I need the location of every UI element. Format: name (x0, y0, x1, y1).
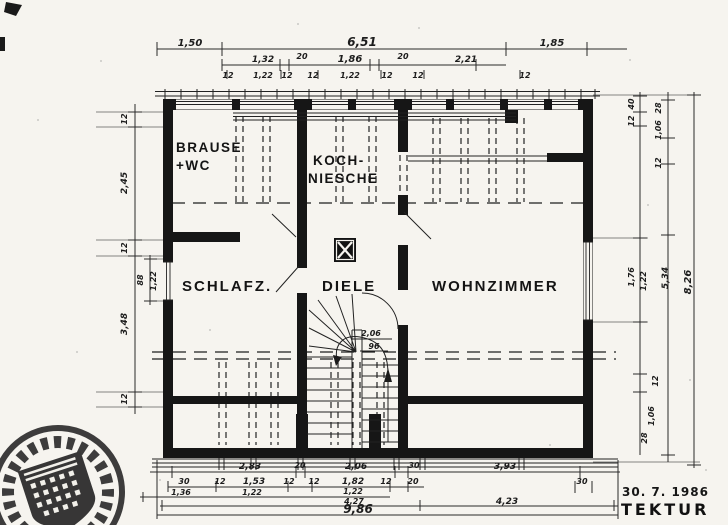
dimension-label: 12 (120, 242, 129, 254)
dimension-label: 12 (120, 113, 129, 125)
dimension-label: 12 (120, 393, 129, 405)
dimension-label: 12 (283, 477, 295, 486)
dimension-label: 4,23 (495, 497, 518, 507)
floor-plan-canvas: BRAUSE +WC KOCH- NIESCHE SCHLAFZ. DIELE … (0, 0, 728, 525)
dimension-label: 1,22 (639, 271, 648, 291)
dimension-label: 12 (281, 71, 293, 80)
tektur-label: TEKTUR (621, 500, 709, 519)
paper-background (0, 0, 728, 525)
dimension-label: 30 (408, 461, 420, 470)
dimension-label: 12 (222, 71, 234, 80)
dimension-label: 1,22 (253, 71, 273, 80)
dimension-label: 12 (627, 115, 636, 127)
room-label-koch: KOCH- (313, 153, 365, 168)
dimension-label: 40 (627, 98, 636, 111)
dimension-label: 2,45 (120, 172, 130, 194)
stair-dim-label: 96 (368, 342, 380, 351)
dimension-label: 1,76 (627, 267, 636, 287)
dimension-label: 30 (576, 477, 588, 486)
dimension-label: 6,51 (347, 35, 377, 49)
dimension-label: 12 (519, 71, 531, 80)
dimension-label: 28 (640, 432, 649, 444)
dimension-label: 1,06 (647, 406, 656, 426)
room-label-diele: DIELE (322, 278, 376, 295)
dimension-label: 88 (136, 274, 145, 286)
dimension-label: 1,86 (338, 54, 363, 65)
dimension-label: 2,21 (455, 55, 477, 65)
dimension-label: 12 (307, 71, 319, 80)
dimension-label: 3,48 (120, 313, 130, 335)
dimension-label: 1,22 (149, 271, 158, 291)
dimension-label: 1,22 (343, 487, 363, 496)
dimension-label: 12 (380, 477, 392, 486)
dimension-label: 1,06 (654, 120, 663, 140)
dimension-label: 20 (407, 477, 419, 486)
revision-date-label: 30. 7. 1986 (622, 485, 709, 499)
dimension-label: 9,86 (343, 502, 373, 516)
dimension-label: 1,22 (242, 488, 262, 497)
dimension-label: 12 (214, 477, 226, 486)
dimension-label: 30 (178, 477, 190, 486)
dimension-label: 12 (308, 477, 320, 486)
scanned-floor-plan: BRAUSE +WC KOCH- NIESCHE SCHLAFZ. DIELE … (0, 0, 728, 525)
dimension-label: 1,82 (342, 477, 364, 487)
dimension-label: 3,93 (494, 462, 516, 472)
room-label-schlafz: SCHLAFZ. (182, 278, 272, 295)
room-label-brause: BRAUSE (176, 140, 242, 155)
dimension-label: 12 (651, 375, 660, 387)
dimension-label: 2,06 (345, 462, 367, 472)
dimension-label: 2,83 (239, 462, 261, 472)
dimension-label: 1,22 (340, 71, 360, 80)
room-label-niesche: NIESCHE (308, 171, 379, 186)
dimension-label: 8,26 (683, 270, 694, 295)
dimension-label: 1,36 (171, 488, 191, 497)
dimension-label: 20 (294, 461, 306, 470)
chimney-symbol (334, 238, 356, 262)
dimension-label: 1,50 (178, 38, 203, 49)
room-label-wc: +WC (176, 158, 211, 173)
dimension-label: 1,53 (243, 477, 265, 487)
dimension-label: 1,32 (252, 55, 274, 65)
room-label-wohnzimmer: WOHNZIMMER (432, 278, 559, 295)
dimension-label: 12 (381, 71, 393, 80)
revision-note: 30. 7. 1986 TEKTUR (621, 485, 709, 519)
dimension-label: 12 (412, 71, 424, 80)
dimension-label: 28 (654, 102, 663, 114)
dimension-label: 20 (296, 52, 308, 61)
stair-dim-label: 2,06 (361, 329, 381, 338)
dimension-label: 5,34 (661, 267, 671, 289)
dimension-label: 20 (397, 52, 409, 61)
dimension-label: 12 (654, 157, 663, 169)
dimension-label: 1,85 (540, 38, 565, 49)
